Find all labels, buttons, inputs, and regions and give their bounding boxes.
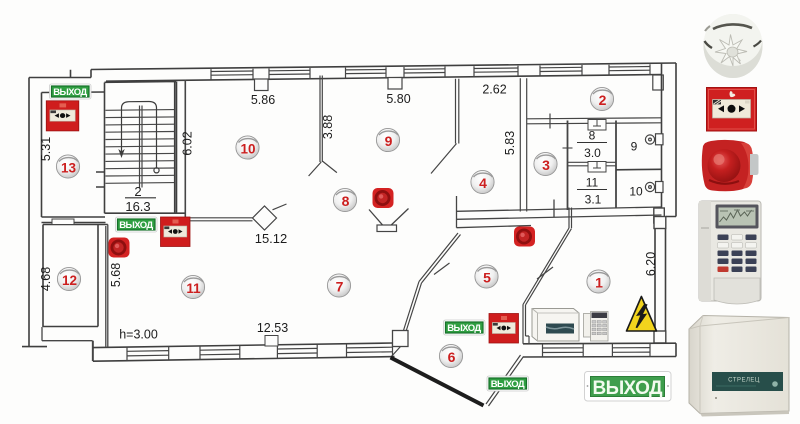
svg-text:2: 2 [134,184,141,199]
svg-text:9: 9 [385,133,393,149]
svg-text:6.20: 6.20 [644,252,658,276]
svg-text:1: 1 [595,275,603,291]
svg-text:10: 10 [240,142,255,157]
svg-text:12: 12 [62,273,77,288]
svg-text:5: 5 [483,270,491,286]
svg-text:6.02: 6.02 [181,131,195,155]
svg-text:12.53: 12.53 [257,321,288,335]
svg-text:8: 8 [342,193,350,209]
svg-text:5.31: 5.31 [39,137,53,161]
svg-text:15.12: 15.12 [255,231,288,246]
svg-text:11: 11 [186,281,201,296]
svg-text:4: 4 [479,175,487,191]
svg-text:2: 2 [599,92,607,108]
svg-text:3.88: 3.88 [321,115,335,139]
svg-text:11: 11 [586,176,599,190]
svg-text:3: 3 [542,157,550,173]
svg-text:6: 6 [448,349,456,365]
svg-text:5.68: 5.68 [109,263,123,287]
svg-text:10: 10 [629,185,643,199]
svg-text:5.83: 5.83 [503,131,517,155]
svg-text:16.3: 16.3 [125,199,150,214]
svg-text:8: 8 [589,129,596,143]
svg-text:2.62: 2.62 [482,83,506,97]
svg-text:5.80: 5.80 [386,92,410,106]
svg-text:h=3.00: h=3.00 [119,328,158,342]
svg-text:СТРЕЛЕЦ: СТРЕЛЕЦ [728,378,760,384]
svg-text:4.68: 4.68 [39,267,53,291]
svg-text:13: 13 [61,161,77,176]
svg-text:5.86: 5.86 [251,93,275,107]
svg-text:3.0: 3.0 [584,146,601,160]
svg-text:3.1: 3.1 [585,193,602,207]
svg-text:ВЫХОД: ВЫХОД [593,378,663,399]
svg-text:7: 7 [336,279,344,295]
svg-text:9: 9 [631,140,638,154]
